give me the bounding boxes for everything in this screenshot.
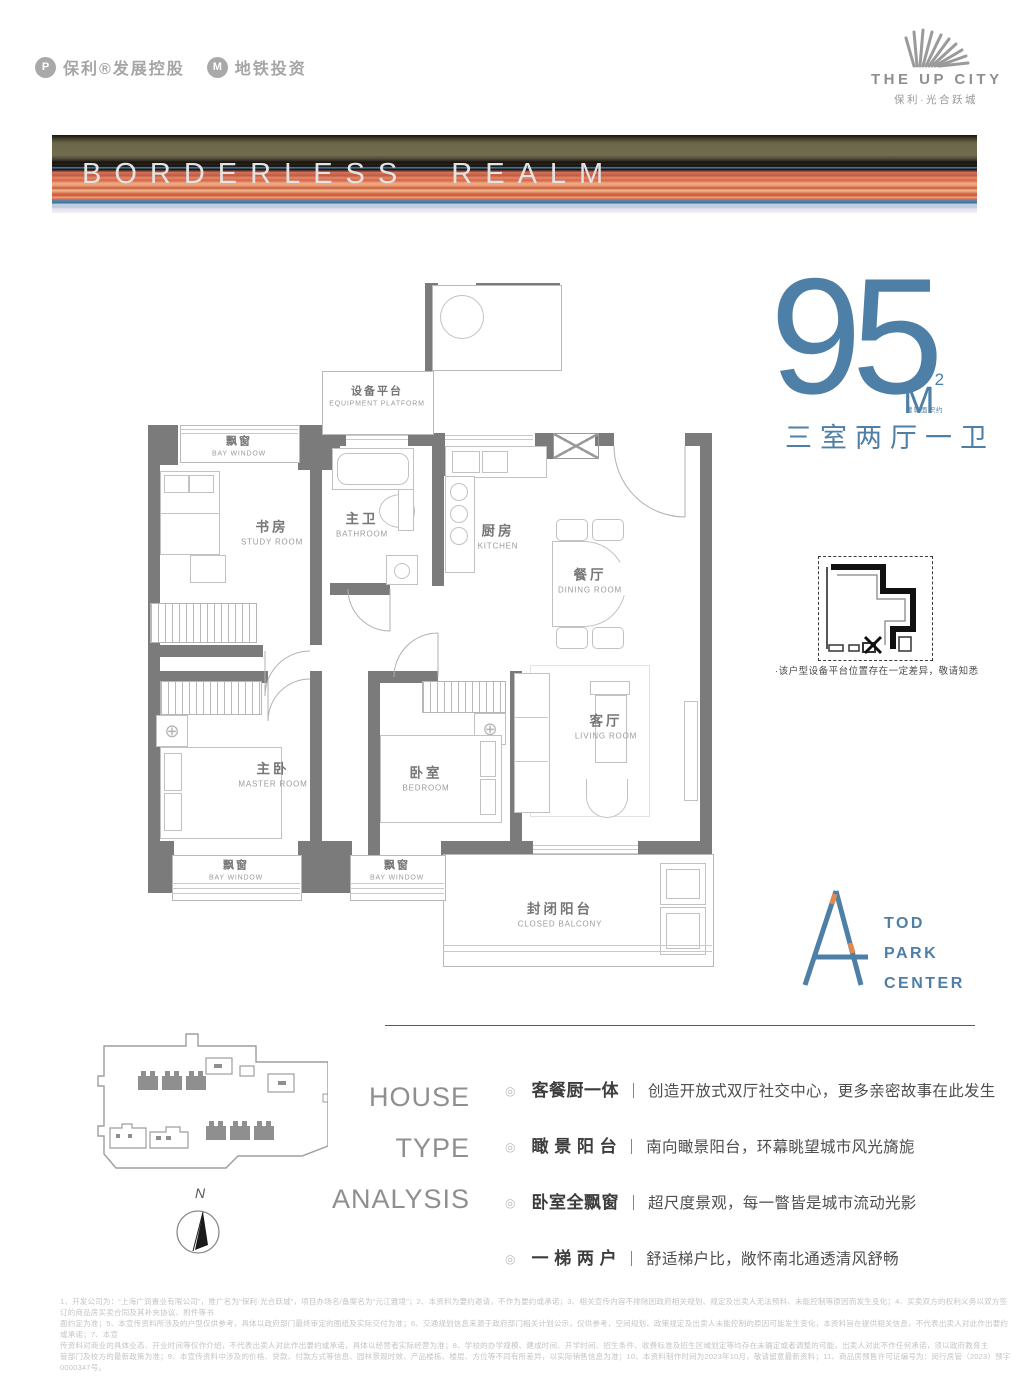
poster-page: { "header": { "logo1_text": "保利®发展控股", "…: [0, 0, 1029, 1400]
pillow: [480, 779, 496, 815]
bullet-icon: ◎: [505, 1252, 515, 1266]
brand-subtitle: 保利·光合跃城: [871, 92, 1001, 107]
area-unit-note: 建筑面积约: [906, 404, 944, 414]
dryer-door: [666, 913, 700, 949]
room-label-bedroom: 卧室BEDROOM: [403, 762, 450, 793]
wall-segment: [310, 463, 322, 645]
study-closet: [150, 603, 257, 643]
wall-segment: [432, 473, 444, 586]
metro-logo-icon: M: [207, 57, 228, 78]
banner: BORDERLESS REALM: [52, 135, 977, 213]
header-brand-left: P 保利®发展控股 M 地铁投资: [35, 55, 307, 79]
nightstand: ⊕: [156, 715, 188, 747]
study-bed-blanket: [160, 513, 220, 555]
room-label-bay-master: 飘窗BAY WINDOW: [209, 857, 263, 882]
metro-logo-text: 地铁投资: [235, 55, 307, 79]
inset-note: ·该户型设备平台位置存在一定差异，敬请知悉: [775, 663, 979, 677]
banner-title: BORDERLESS REALM: [82, 158, 616, 191]
tv-console: [590, 681, 630, 695]
window-line: [533, 845, 638, 846]
analysis-item: ◎ 卧室全飘窗 ｜ 超尺度景观，每一瞥皆是城市流动光影: [505, 1188, 985, 1213]
letter-a-icon: [798, 885, 870, 989]
room-count-text: 三室两厅一卫: [785, 416, 995, 455]
room-label-bay-bedroom: 飘窗BAY WINDOW: [370, 857, 424, 882]
tod-park-center-logo: TOD PARK CENTER: [798, 885, 965, 999]
bathtub-inner: [337, 453, 409, 485]
compass-n-label: N: [195, 1185, 206, 1201]
pillow: [164, 753, 182, 791]
window-line: [346, 435, 408, 436]
pillow: [164, 475, 189, 493]
bedroom-wardrobe: [422, 681, 506, 713]
window-line: [180, 429, 298, 430]
shaft-circle: [440, 295, 484, 339]
wall-segment: [148, 425, 178, 465]
wall-segment: [368, 671, 380, 855]
room-label-balcony: 封闭阳台CLOSED BALCONY: [518, 898, 603, 929]
window-line: [350, 893, 444, 894]
wall-segment: [298, 841, 352, 893]
sofa: [514, 673, 550, 813]
section-divider: [385, 1025, 975, 1026]
project-brand: THE UP CITY 保利·光合跃城: [871, 26, 1001, 107]
analysis-item: ◎ 客餐厨一体 ｜ 创造开放式双厅社交中心，更多亲密故事在此发生: [505, 1076, 985, 1101]
wall-segment: [330, 583, 390, 595]
toilet-tank: [398, 489, 414, 531]
analysis-item: ◎ 一 梯 两 户 ｜ 舒适梯户比，敞怀南北通透清风舒畅: [505, 1244, 985, 1269]
room-label-kitchen: 厨房KITCHEN: [478, 520, 519, 551]
bath-sink-bowl: [394, 563, 410, 579]
inset-diagram: [819, 557, 930, 658]
sofa-seam: [514, 761, 548, 762]
area-block: 95 M2 建筑面积约: [770, 258, 985, 415]
dining-chair: [592, 627, 624, 649]
stove-burner: [450, 483, 468, 501]
analysis-item: ◎ 瞰 景 阳 台 ｜ 南向瞰景阳台，环幕眺望城市风光旖旎: [505, 1132, 985, 1157]
window-line: [533, 849, 638, 850]
window-line: [445, 435, 533, 436]
brand-name: THE UP CITY: [871, 71, 1001, 88]
window-line: [533, 853, 638, 854]
analysis-list: ◎ 客餐厨一体 ｜ 创造开放式双厅社交中心，更多亲密故事在此发生 ◎ 瞰 景 阳…: [505, 1076, 985, 1300]
floor-plan: 设备平台EQUIPMENT PLATFORM 飘窗BAY WINDOW 书房ST…: [140, 283, 760, 1018]
stove-burner: [450, 505, 468, 523]
room-label-study: 书房STUDY ROOM: [241, 516, 303, 547]
dining-chair: [556, 519, 588, 541]
room-label-master: 主卧MASTER ROOM: [238, 758, 307, 789]
wall-segment: [148, 645, 263, 657]
tv-cabinet: [684, 701, 698, 801]
room-label-dining: 餐厅DINING ROOM: [554, 563, 626, 596]
shaft-window: [553, 433, 599, 459]
developer-logo: P 保利®发展控股: [35, 55, 185, 79]
dining-chair: [592, 519, 624, 541]
equipment-platform-inset: [818, 556, 933, 661]
fan-icon: [900, 26, 972, 68]
study-desk: [190, 555, 226, 583]
window-line: [172, 888, 300, 889]
room-label-bay-top: 飘窗BAY WINDOW: [212, 433, 266, 458]
area-number: 95: [770, 258, 985, 415]
legal-disclaimer: 1、开发公司为：“上海广润置业有限公司”，推广名为“保利·光合跃城”，项目办场名…: [60, 1296, 1012, 1373]
bullet-icon: ◎: [505, 1140, 515, 1154]
master-wardrobe: [160, 681, 262, 715]
kitchen-sink: [482, 451, 508, 473]
window-line: [346, 439, 408, 440]
wall-segment: [432, 433, 445, 476]
bullet-icon: ◎: [505, 1196, 515, 1210]
pillow: [164, 793, 182, 831]
wall-segment: [310, 671, 322, 855]
window-line: [172, 893, 300, 894]
balcony-sill-line: [443, 951, 712, 952]
metro-logo: M 地铁投资: [207, 55, 307, 79]
poly-logo-icon: P: [35, 57, 56, 78]
balcony-sill-line: [443, 945, 712, 946]
room-label-bath: 主卫BATHROOM: [336, 508, 388, 539]
kitchen-sink: [452, 451, 480, 473]
washer-door: [666, 869, 700, 899]
window-line: [350, 888, 444, 889]
tod-logo-text: TOD PARK CENTER: [884, 909, 965, 999]
window-line: [350, 883, 444, 884]
window-line: [445, 439, 533, 440]
analysis-heading: HOUSE TYPE ANALYSIS: [260, 1072, 470, 1225]
room-label-equipment: 设备平台EQUIPMENT PLATFORM: [329, 383, 424, 408]
window-line: [172, 883, 300, 884]
bullet-icon: ◎: [505, 1084, 515, 1098]
wall-segment: [685, 433, 712, 446]
compass-icon: N: [168, 1182, 228, 1264]
sofa-seam: [514, 717, 548, 718]
developer-logo-text: 保利®发展控股: [63, 55, 185, 79]
dining-chair: [556, 627, 588, 649]
wall-segment: [148, 463, 160, 855]
room-label-living: 客厅LIVING ROOM: [575, 710, 637, 741]
wall-segment: [148, 841, 174, 893]
pillow: [189, 475, 214, 493]
pillow: [480, 741, 496, 777]
stove-burner: [450, 527, 468, 545]
